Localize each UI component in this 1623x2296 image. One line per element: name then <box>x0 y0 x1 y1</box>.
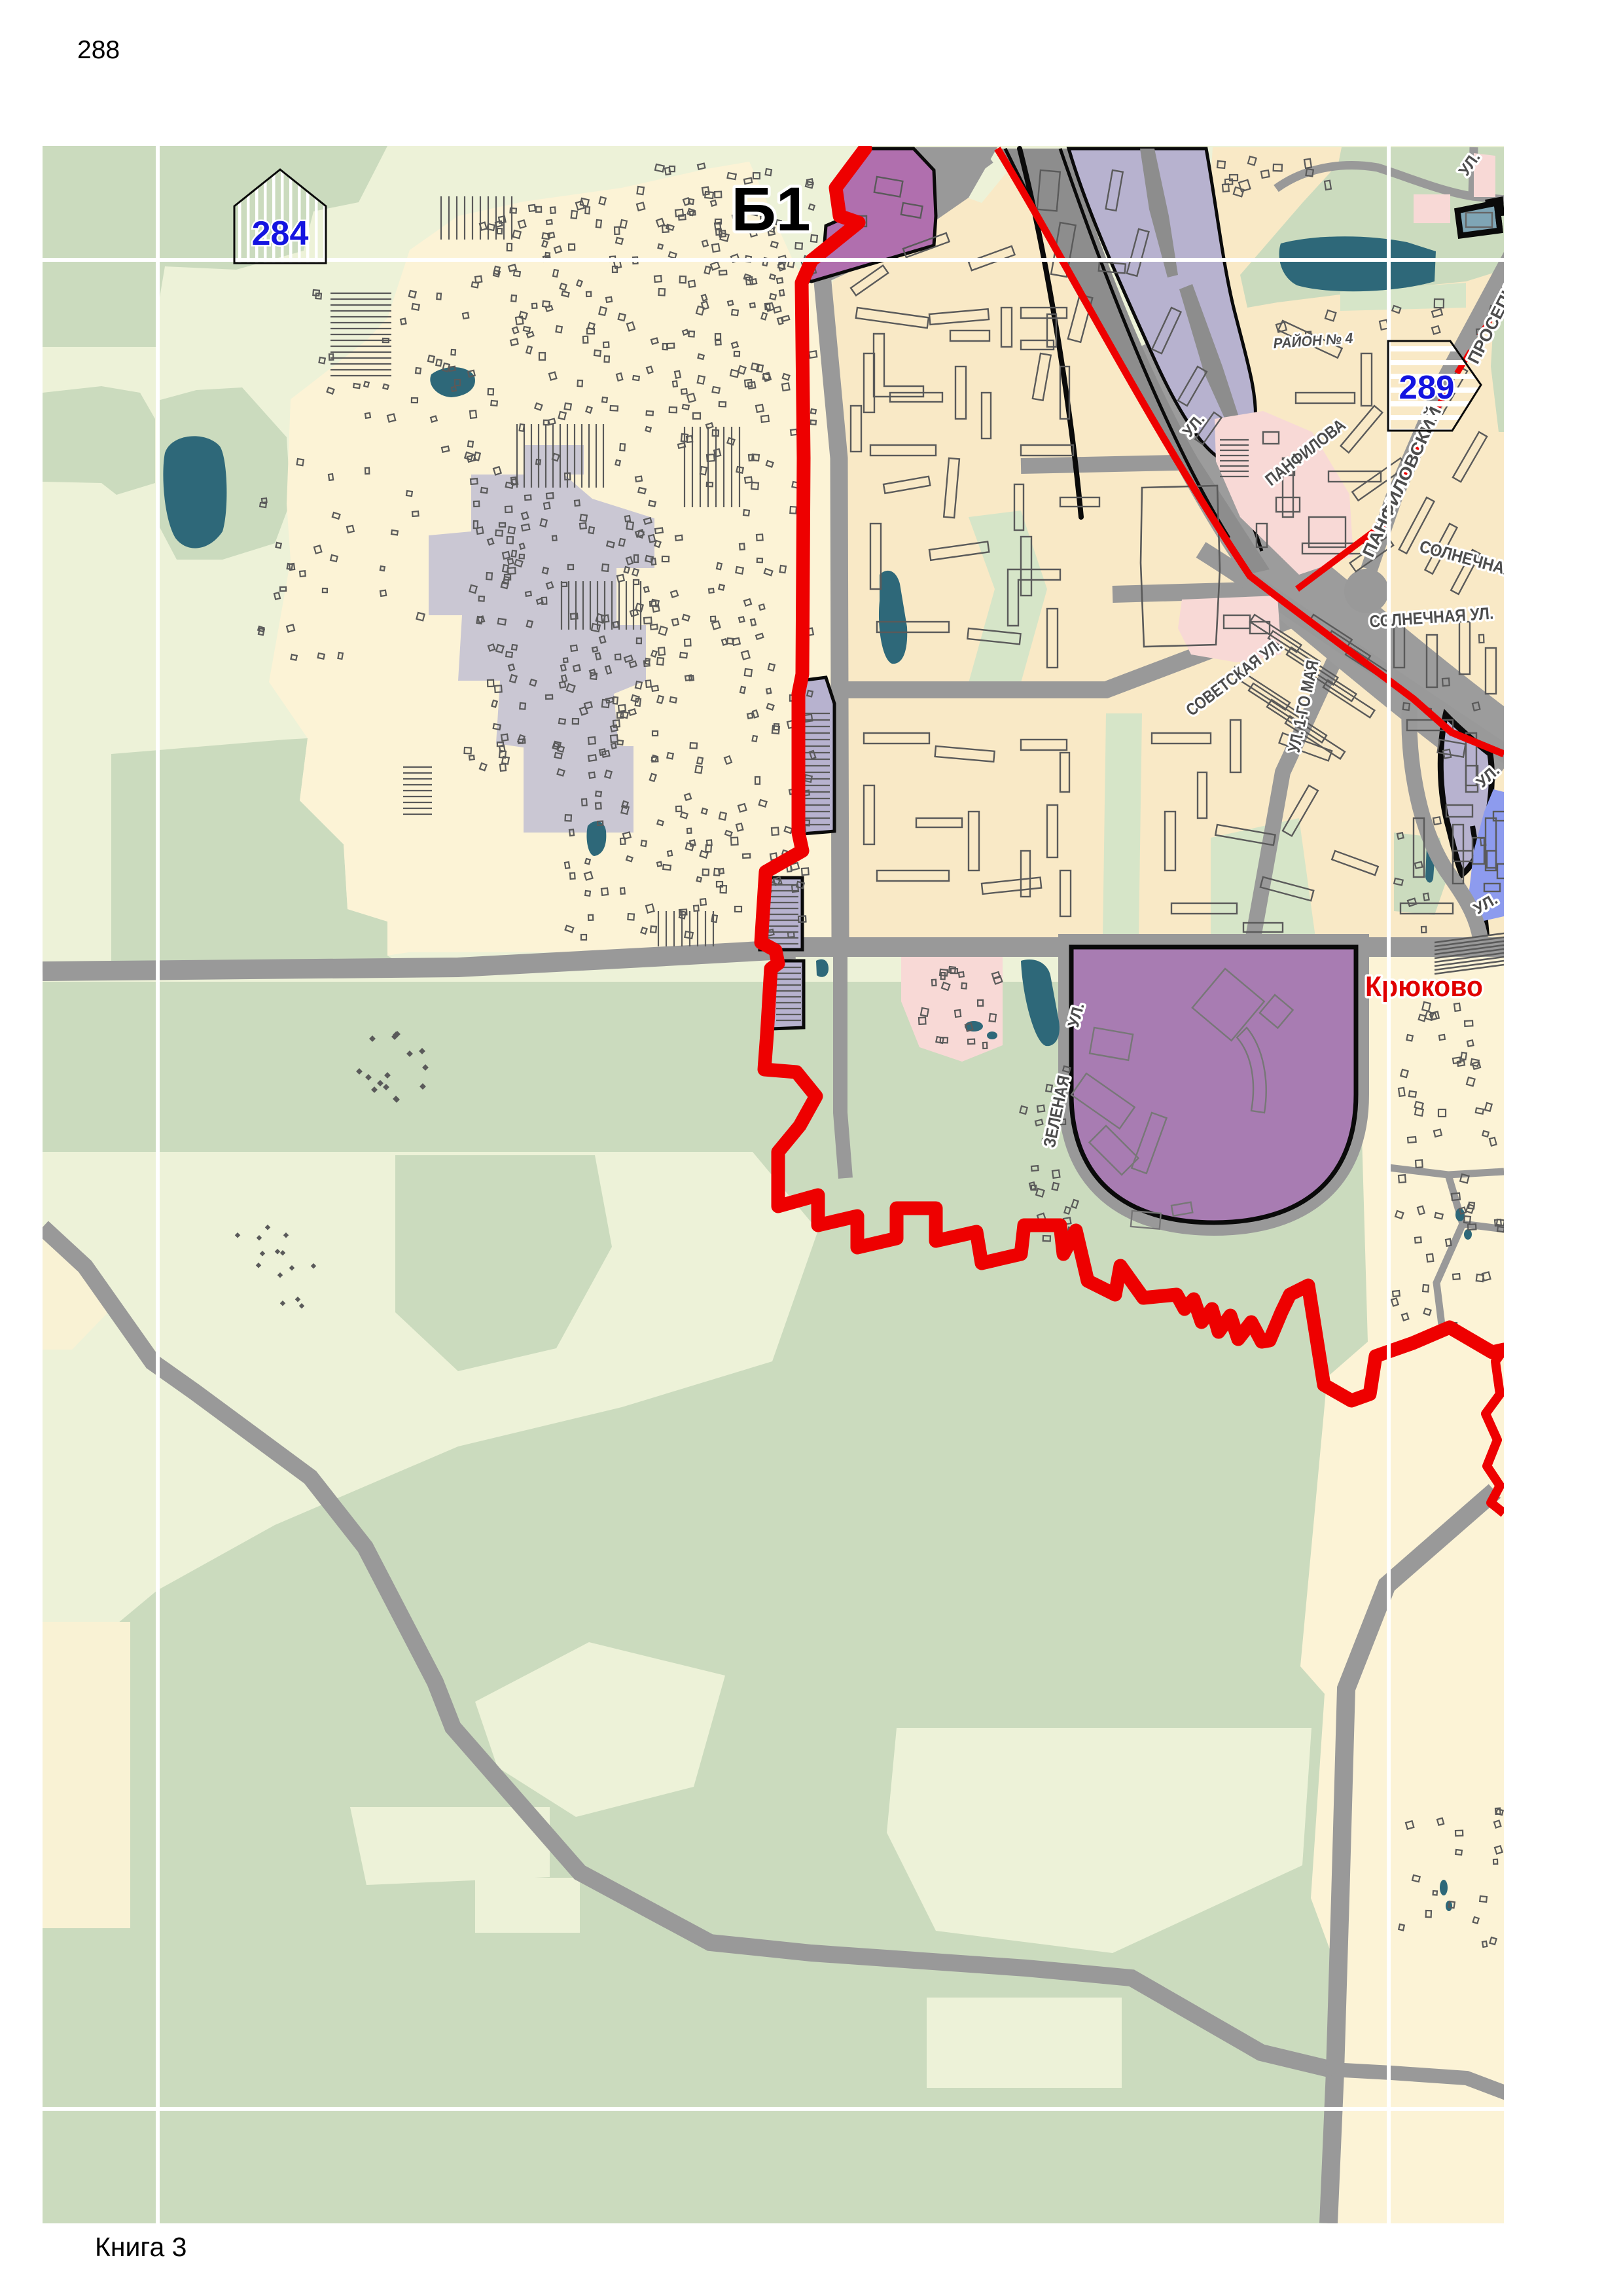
svg-text:Книга 3: Книга 3 <box>95 2232 187 2262</box>
svg-text:288: 288 <box>77 36 120 64</box>
svg-text:Крюково: Крюково <box>1365 971 1483 1003</box>
svg-text:Б1: Б1 <box>731 175 810 244</box>
svg-text:284: 284 <box>252 215 309 253</box>
svg-text:289: 289 <box>1399 368 1454 406</box>
